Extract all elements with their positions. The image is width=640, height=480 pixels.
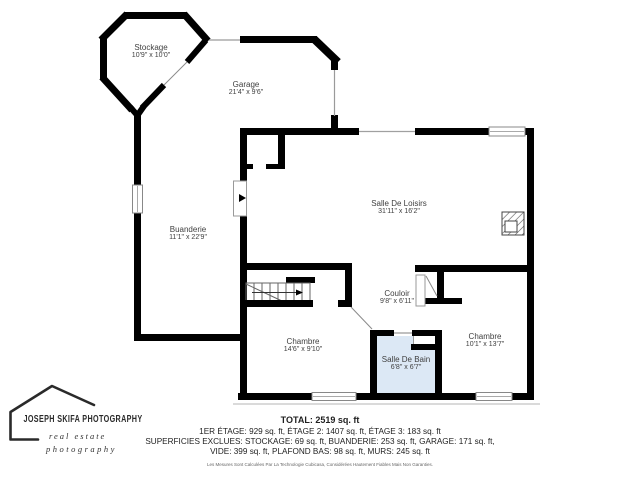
room-label-salle-de-loisirs: Salle De Loisirs 31'11" x 16'2" [371,200,427,215]
couloir-door-swing [351,307,372,329]
floor-plan-page: Stockage 10'9" x 10'0" Garage 21'4" x 9'… [0,0,640,480]
room-dims: 31'11" x 16'2" [371,208,427,215]
room-name: Garage [229,81,264,89]
room-label-buanderie: Buanderie 11'1" x 22'9" [169,226,207,241]
couloir-top-walls [240,263,533,272]
room-dims: 10'1" x 13'7" [466,341,504,348]
floor-plan-drawing [0,0,640,480]
room-label-chambre-left: Chambre 14'6" x 9'10" [284,338,322,353]
room-dims: 21'4" x 9'6" [229,89,264,96]
right-wall [527,128,534,400]
bottom-window-left [312,393,356,401]
buanderie-window [133,185,143,213]
room-name: Salle De Loisirs [371,200,427,208]
chambre2-door-swing [426,276,437,296]
buanderie-door [234,181,247,216]
room-name: Buanderie [169,226,207,234]
room-label-chambre-right: Chambre 10'1" x 13'7" [466,333,504,348]
room-dims: 10'9" x 10'0" [132,52,170,59]
bottom-window-right [476,393,512,401]
logo-tagline-photography: photography [46,444,117,454]
room-label-salle-de-bain: Salle De Bain 6'8" x 6'7" [382,356,430,371]
room-name: Chambre [466,333,504,341]
room-dims: 9'8" x 6'11" [380,298,414,305]
room-dims: 14'6" x 9'10" [284,346,322,353]
room-name: Salle De Bain [382,356,430,364]
room-label-stockage: Stockage 10'9" x 10'0" [132,44,170,59]
room-label-couloir: Couloir 9'8" x 6'11" [380,290,414,305]
stockage-walls [101,14,208,116]
summary-disclaimer: Les Mesures Sont Calculées Par La Techno… [0,462,640,467]
room-name: Stockage [132,44,170,52]
stairs-icon [246,277,315,302]
room-dims: 6'8" x 6'7" [382,364,430,371]
room-name: Couloir [380,290,414,298]
fireplace-icon [502,212,524,235]
stockage-door [164,62,187,85]
room-name: Chambre [284,338,322,346]
chambre2-door [416,275,425,306]
logo-tagline-real-estate: real estate [49,431,106,441]
room-label-garage: Garage 21'4" x 9'6" [229,81,264,96]
top-window [489,127,525,136]
logo-company-name: JOSEPH SKIFA PHOTOGRAPHY [23,414,142,425]
room-dims: 11'1" x 22'9" [169,234,207,241]
